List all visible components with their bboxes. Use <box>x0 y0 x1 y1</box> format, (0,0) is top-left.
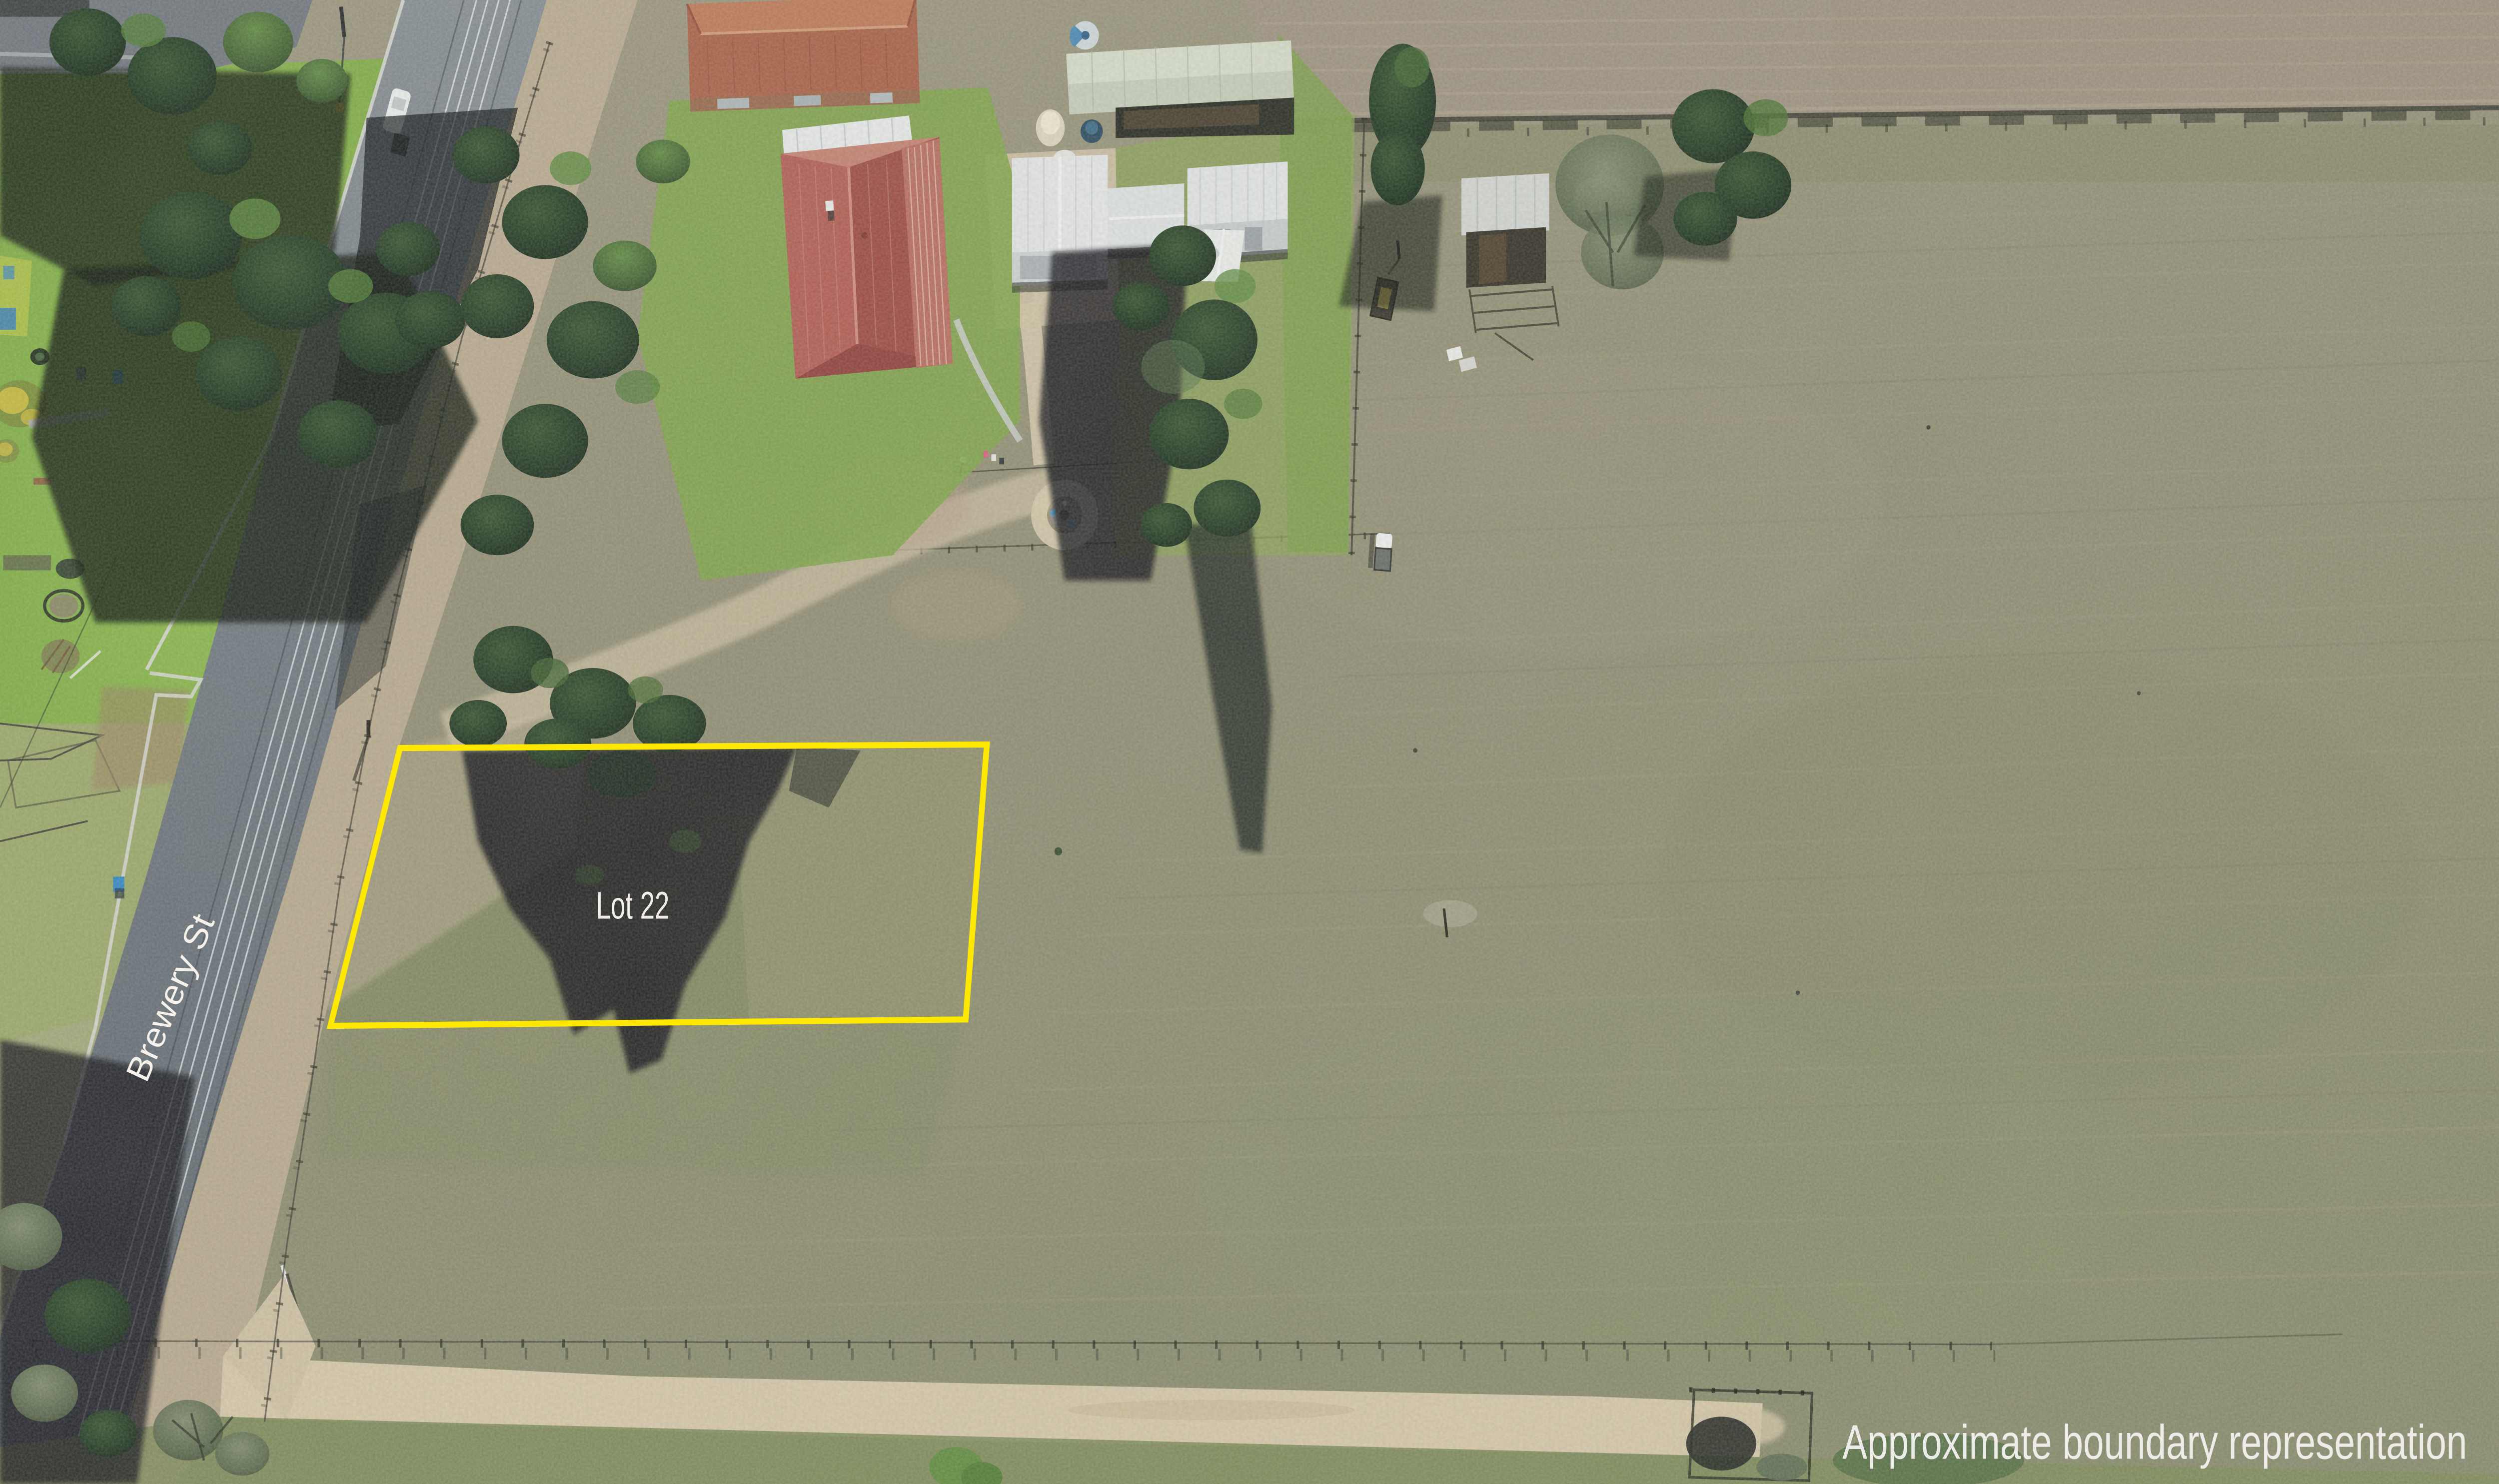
grain-dark <box>0 0 2499 1484</box>
caption-label: Approximate boundary representation <box>1842 1415 2467 1470</box>
aerial-photo: Lot 22 Brewery St Approximate boundary r… <box>0 0 2499 1484</box>
lot-label: Lot 22 <box>596 884 670 927</box>
